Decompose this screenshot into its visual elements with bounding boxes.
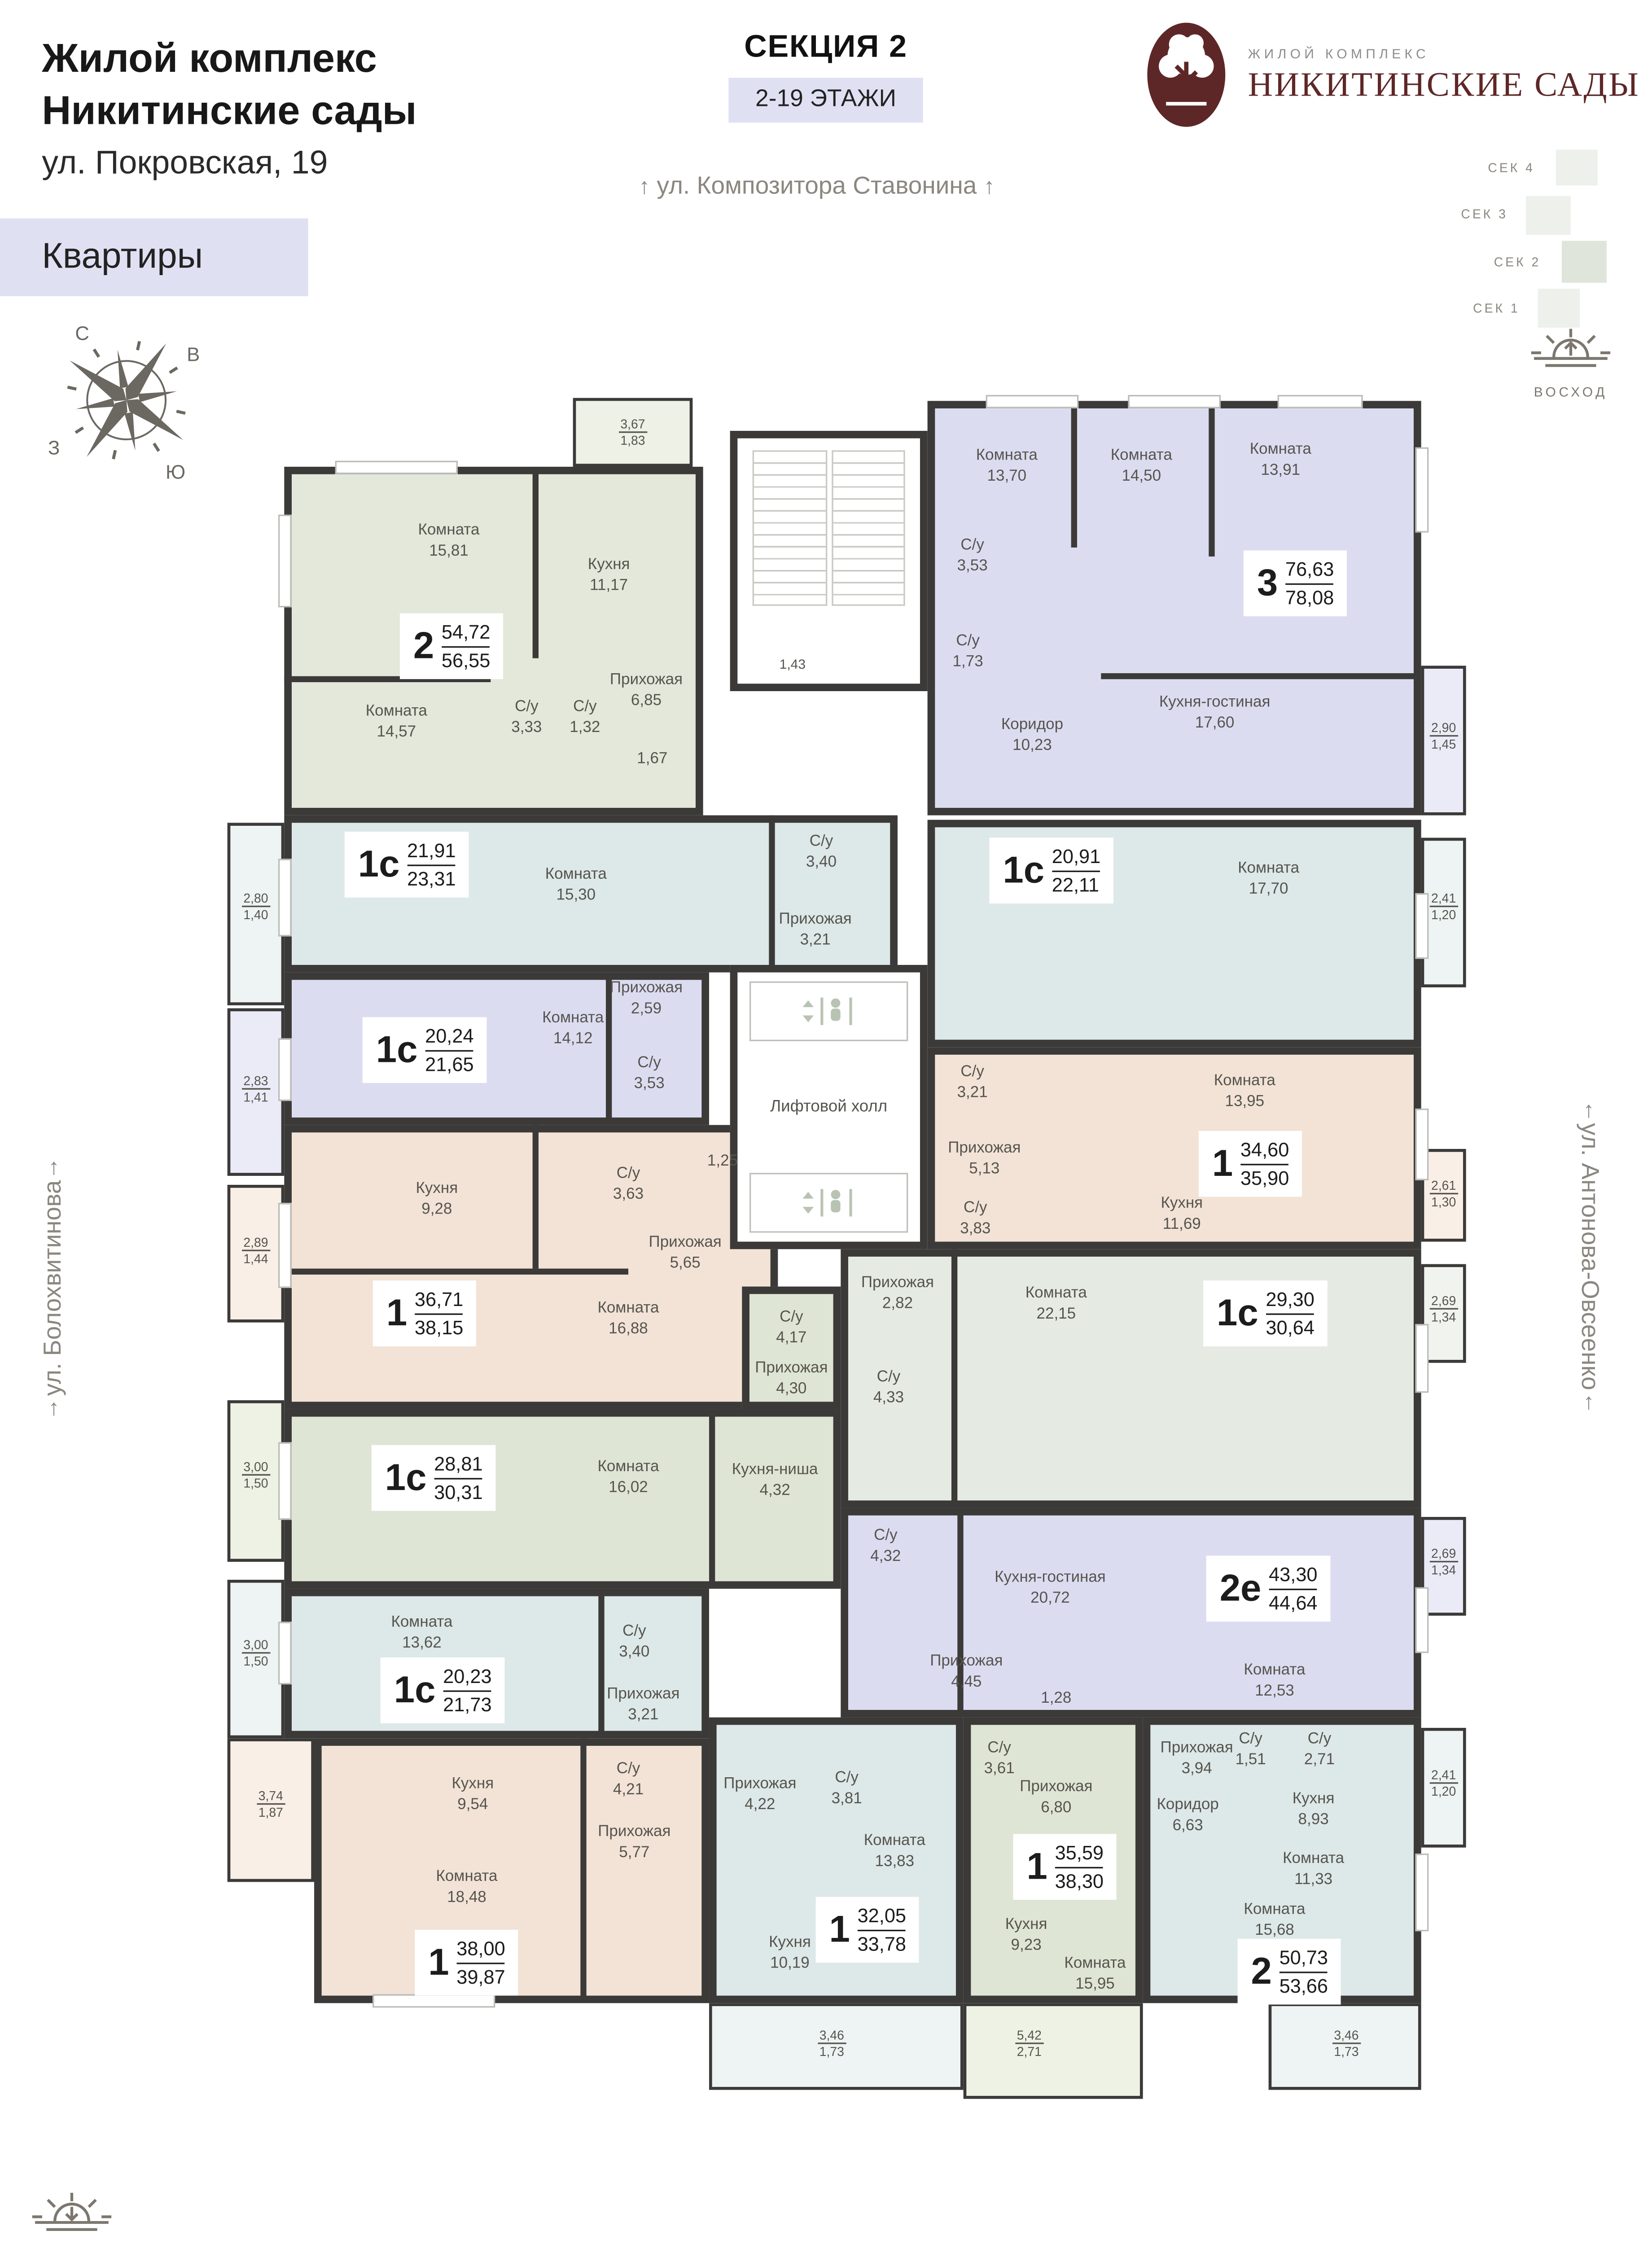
apartment-badge-apt-1c-3064[interactable]: 1с29,3030,64 <box>1205 1282 1326 1345</box>
room-label-прихожая: Прихожая2,82 <box>861 1274 934 1315</box>
room-label-комната: Комната22,15 <box>1025 1284 1087 1325</box>
apartment-badge-apt-1c-3031[interactable]: 1с28,8130,31 <box>373 1446 495 1509</box>
window <box>1417 449 1427 531</box>
room-label-прихожая: Прихожая3,21 <box>607 1685 679 1726</box>
room-label-прихожая: Прихожая6,80 <box>1020 1778 1092 1819</box>
room-label-прихожая: Прихожая5,77 <box>598 1823 670 1863</box>
apartment-badge-apt-1-3378[interactable]: 132,0533,78 <box>817 1898 918 1961</box>
page: Жилой комплекс Никитинские сады ул. Покр… <box>0 0 1652 2244</box>
window <box>374 1996 494 2006</box>
room-label-прихожая: Прихожая6,85 <box>610 671 683 712</box>
balcony-apt-1-3830 <box>964 2003 1143 2099</box>
apartment-badge-apt-1-3590[interactable]: 134,6035,90 <box>1200 1132 1301 1195</box>
apartment-badge-apt-2-5366[interactable]: 250,7353,66 <box>1239 1940 1340 2003</box>
room-label-комната: Комната15,81 <box>418 521 479 562</box>
room-label-комната: Комната16,88 <box>597 1299 659 1340</box>
stair-balcony-area: 1,43 <box>780 657 806 671</box>
apartment-badge-apt-1-3987[interactable]: 138,0039,87 <box>416 1931 517 1994</box>
balcony-label: 3,461,73 <box>818 2028 846 2060</box>
room-label-комната: Комната13,95 <box>1214 1072 1275 1113</box>
room-label-кухня: Кухня11,17 <box>588 556 630 596</box>
room-label-прихожая: Прихожая4,22 <box>723 1775 796 1815</box>
interior-wall <box>598 1592 604 1736</box>
room-label-комната: Комната14,57 <box>366 702 427 743</box>
interior-wall <box>1101 673 1421 679</box>
room-label-комната: Комната18,48 <box>436 1867 497 1908</box>
balcony-label: 3,741,87 <box>257 1788 285 1820</box>
room-label-прихожая: Прихожая5,65 <box>649 1233 722 1274</box>
interior-wall <box>951 1249 957 1505</box>
room-label-с/у: С/у2,71 <box>1304 1730 1335 1771</box>
apartment-badge-apt-1c-2331[interactable]: 1с21,9123,31 <box>346 833 468 896</box>
interior-wall <box>533 467 539 658</box>
window <box>1130 396 1219 407</box>
room-label-с/у: С/у3,40 <box>806 833 837 873</box>
balcony-label: 2,801,40 <box>242 891 270 923</box>
elevator-hall: Лифтовой холл <box>730 965 928 1249</box>
room-label-с/у: С/у1,32 <box>570 698 600 739</box>
room-label-прихожая: Прихожая3,21 <box>779 910 852 951</box>
interior-wall <box>709 1409 715 1586</box>
window <box>1417 894 1427 957</box>
interior-wall <box>580 1738 586 2000</box>
room-label-прихожая: Прихожая3,94 <box>1161 1739 1233 1779</box>
interior-wall <box>533 1125 539 1269</box>
apartment-badge-apt-1-3830[interactable]: 135,5938,30 <box>1015 1836 1116 1898</box>
room-label-комната: Комната15,30 <box>545 865 607 906</box>
interior-wall <box>1071 401 1077 548</box>
apartment-apt-2e-4464[interactable] <box>841 1508 1421 1718</box>
room-label: 1,67 <box>637 750 667 770</box>
room-label-прихожая: Прихожая4,45 <box>930 1652 1003 1693</box>
room-label-комната: Комната12,53 <box>1244 1661 1305 1702</box>
room-label-с/у: С/у3,21 <box>957 1063 988 1104</box>
interior-wall <box>769 815 775 969</box>
room-label-кухня: Кухня9,54 <box>451 1775 494 1815</box>
room-label-кухня-ниша: Кухня-ниша4,32 <box>732 1460 818 1501</box>
window <box>337 462 456 473</box>
room-label-с/у: С/у3,61 <box>984 1739 1015 1779</box>
interior-wall <box>1209 401 1214 557</box>
room-label-с/у: С/у1,73 <box>953 632 983 673</box>
room-label-с/у: С/у1,51 <box>1236 1730 1266 1771</box>
balcony-label: 3,001,50 <box>242 1459 270 1491</box>
room-label-комната: Комната17,70 <box>1238 859 1299 900</box>
room-label-с/у: С/у3,81 <box>832 1769 862 1810</box>
balcony-label: 3,671,83 <box>619 416 647 448</box>
window <box>1279 396 1361 407</box>
apartment-badge-apt-3-7808[interactable]: 376,6378,08 <box>1245 552 1346 615</box>
balcony-label: 2,901,45 <box>1430 720 1458 752</box>
window <box>280 1204 290 1286</box>
balcony-label: 3,001,50 <box>242 1637 270 1669</box>
room-label-кухня-гостиная: Кухня-гостиная17,60 <box>1159 693 1271 734</box>
window <box>1417 1589 1427 1652</box>
balcony-label: 2,891,44 <box>242 1235 270 1267</box>
room-label-комната: Комната14,12 <box>542 1009 604 1050</box>
room-label-комната: Комната15,68 <box>1244 1900 1305 1941</box>
window <box>1417 1110 1427 1179</box>
elevator-hall-label: Лифтовой холл <box>764 1098 893 1116</box>
balcony-label: 2,411,20 <box>1430 891 1458 923</box>
room-label-комната: Комната13,91 <box>1250 440 1311 481</box>
room-label-с/у: С/у3,53 <box>634 1054 665 1095</box>
room-label-с/у: С/у3,40 <box>619 1622 649 1663</box>
apartment-badge-apt-1c-2173[interactable]: 1с20,2321,73 <box>382 1659 504 1722</box>
elevator-icon <box>749 1173 908 1232</box>
window <box>1417 1325 1427 1391</box>
balcony-label: 2,411,20 <box>1430 1767 1458 1799</box>
room-label-комната: Комната13,83 <box>864 1832 925 1872</box>
room-label-с/у: С/у4,33 <box>873 1368 904 1409</box>
room-label-с/у: С/у3,33 <box>511 698 542 739</box>
apartment-badge-apt-2-5655[interactable]: 254,7256,55 <box>401 615 502 678</box>
balcony-label: 2,691,34 <box>1430 1293 1458 1325</box>
balcony-label: 2,831,41 <box>242 1073 270 1105</box>
staircase: 1,43 <box>730 431 928 691</box>
room-label-с/у: С/у3,63 <box>613 1165 644 1205</box>
window <box>987 396 1077 407</box>
room-label-прихожая: Прихожая5,13 <box>948 1139 1021 1180</box>
room-label-кухня: Кухня8,93 <box>1293 1790 1335 1831</box>
room-label: 1,25 <box>707 1152 738 1172</box>
room-label-с/у: С/у3,53 <box>957 536 988 577</box>
stairs-icon <box>753 450 905 606</box>
room-label-коридор: Коридор10,23 <box>1001 716 1063 757</box>
interior-wall <box>284 1269 628 1275</box>
room-label-кухня: Кухня10,19 <box>769 1933 811 1974</box>
room-label-с/у: С/у4,21 <box>613 1760 644 1801</box>
room-label-прихожая: Прихожая4,30 <box>755 1359 828 1400</box>
apartment-badge-apt-1c-2211[interactable]: 1с20,9122,11 <box>991 839 1113 902</box>
apartment-badge-apt-1c-2165[interactable]: 1с20,2421,65 <box>364 1019 486 1082</box>
room-label-комната: Комната15,95 <box>1064 1954 1126 1995</box>
room-label-кухня: Кухня9,23 <box>1005 1915 1047 1956</box>
window <box>1417 1855 1427 1930</box>
floor-plan: 1,43 Лифтовой холл <box>0 0 1652 2244</box>
balcony-label: 5,422,71 <box>1015 2028 1043 2060</box>
apartment-badge-apt-2e-4464[interactable]: 2е43,3044,64 <box>1208 1557 1329 1620</box>
room-label-коридор: Коридор6,63 <box>1157 1796 1219 1836</box>
room-label-прихожая: Прихожая2,59 <box>610 979 683 1020</box>
room-label-кухня-гостиная: Кухня-гостиная20,72 <box>995 1568 1106 1609</box>
elevator-icon <box>749 982 908 1041</box>
window <box>280 1444 290 1519</box>
room-label-комната: Комната14,50 <box>1111 447 1172 487</box>
room-label-комната: Комната11,33 <box>1283 1850 1344 1890</box>
window <box>280 1040 290 1100</box>
window <box>280 1623 290 1683</box>
room-label-кухня: Кухня11,69 <box>1161 1194 1203 1235</box>
balcony-label: 3,461,73 <box>1332 2028 1360 2060</box>
room-label-с/у: С/у4,17 <box>776 1308 806 1349</box>
room-label-с/у: С/у4,32 <box>870 1526 901 1567</box>
room-label-кухня: Кухня9,28 <box>416 1179 458 1220</box>
room-label-комната: Комната13,62 <box>391 1613 452 1654</box>
window <box>280 860 290 935</box>
room-label-комната: Комната13,70 <box>976 447 1038 487</box>
window <box>280 516 290 606</box>
apartment-badge-apt-1-3815[interactable]: 136,7138,15 <box>374 1282 475 1345</box>
room-label-комната: Комната16,02 <box>597 1458 659 1499</box>
balcony-label: 2,611,30 <box>1430 1178 1458 1210</box>
balcony-label: 2,691,34 <box>1430 1546 1458 1578</box>
room-label-с/у: С/у3,83 <box>960 1199 990 1240</box>
room-label: 1,28 <box>1041 1689 1071 1709</box>
